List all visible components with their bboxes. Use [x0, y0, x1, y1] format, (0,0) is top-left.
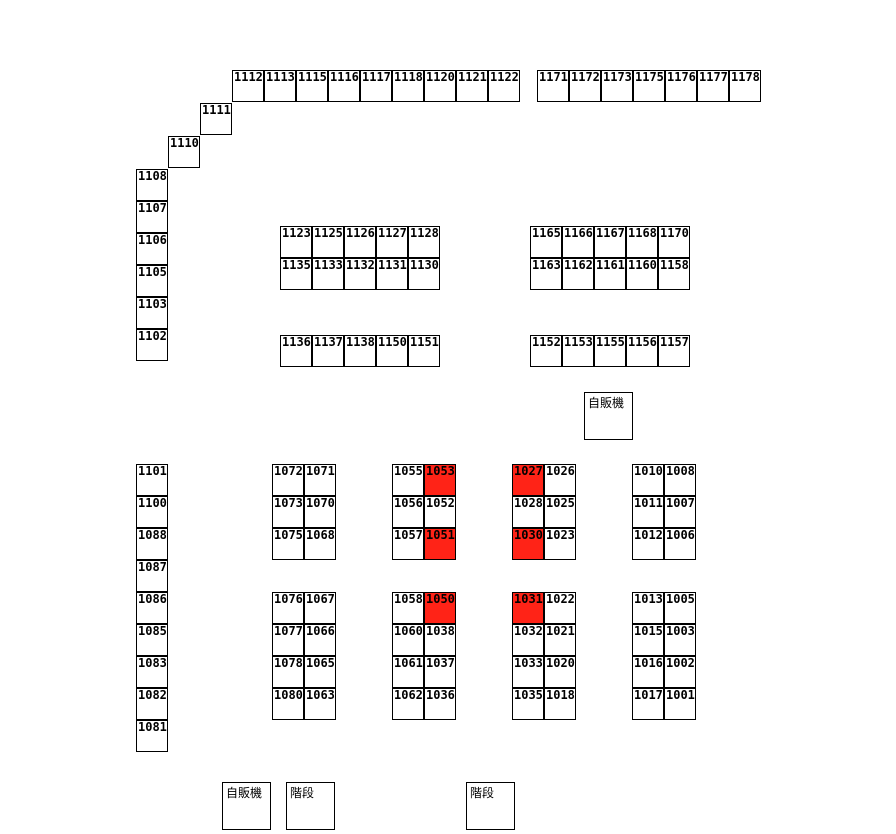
cell-1130: 1130 [408, 258, 440, 290]
cell-1102: 1102 [136, 329, 168, 361]
cell-1063: 1063 [304, 688, 336, 720]
cell-1083: 1083 [136, 656, 168, 688]
cell-1165: 1165 [530, 226, 562, 258]
cell-1155: 1155 [594, 335, 626, 367]
cell-1163: 1163 [530, 258, 562, 290]
cell-1117: 1117 [360, 70, 392, 102]
cell-1010: 1010 [632, 464, 664, 496]
cell-1030: 1030 [512, 528, 544, 560]
cell-1018: 1018 [544, 688, 576, 720]
cell-1133: 1133 [312, 258, 344, 290]
stairs-box-right: 階段 [466, 782, 515, 830]
cell-1051: 1051 [424, 528, 456, 560]
cell-1011: 1011 [632, 496, 664, 528]
cell-1055: 1055 [392, 464, 424, 496]
cell-1073: 1073 [272, 496, 304, 528]
cell-1068: 1068 [304, 528, 336, 560]
cell-1071: 1071 [304, 464, 336, 496]
cell-1157: 1157 [658, 335, 690, 367]
cell-1060: 1060 [392, 624, 424, 656]
cell-1087: 1087 [136, 560, 168, 592]
cell-1170: 1170 [658, 226, 690, 258]
cell-1156: 1156 [626, 335, 658, 367]
cell-1025: 1025 [544, 496, 576, 528]
stairs-box-left: 階段 [286, 782, 335, 830]
cell-1007: 1007 [664, 496, 696, 528]
cell-1027: 1027 [512, 464, 544, 496]
cell-1056: 1056 [392, 496, 424, 528]
cell-1176: 1176 [665, 70, 697, 102]
cell-1016: 1016 [632, 656, 664, 688]
cell-1137: 1137 [312, 335, 344, 367]
cell-1058: 1058 [392, 592, 424, 624]
cell-1120: 1120 [424, 70, 456, 102]
cell-1101: 1101 [136, 464, 168, 496]
cell-1136: 1136 [280, 335, 312, 367]
cell-1082: 1082 [136, 688, 168, 720]
cell-1177: 1177 [697, 70, 729, 102]
cell-1067: 1067 [304, 592, 336, 624]
cell-1123: 1123 [280, 226, 312, 258]
cell-1113: 1113 [264, 70, 296, 102]
cell-1160: 1160 [626, 258, 658, 290]
cell-1152: 1152 [530, 335, 562, 367]
cell-1161: 1161 [594, 258, 626, 290]
cell-1001: 1001 [664, 688, 696, 720]
cell-1037: 1037 [424, 656, 456, 688]
cell-1118: 1118 [392, 70, 424, 102]
cell-1175: 1175 [633, 70, 665, 102]
cell-1111: 1111 [200, 103, 232, 135]
cell-1017: 1017 [632, 688, 664, 720]
cell-1158: 1158 [658, 258, 690, 290]
cell-1035: 1035 [512, 688, 544, 720]
cell-1150: 1150 [376, 335, 408, 367]
cell-1112: 1112 [232, 70, 264, 102]
floor-map: 自販機 自販機 階段 階段 11121113111511161117111811… [0, 0, 896, 834]
cell-1080: 1080 [272, 688, 304, 720]
cell-1033: 1033 [512, 656, 544, 688]
cell-1052: 1052 [424, 496, 456, 528]
cell-1121: 1121 [456, 70, 488, 102]
cell-1065: 1065 [304, 656, 336, 688]
cell-1105: 1105 [136, 265, 168, 297]
cell-1061: 1061 [392, 656, 424, 688]
cell-1002: 1002 [664, 656, 696, 688]
cell-1167: 1167 [594, 226, 626, 258]
cell-1015: 1015 [632, 624, 664, 656]
cell-1138: 1138 [344, 335, 376, 367]
cell-1126: 1126 [344, 226, 376, 258]
cell-1168: 1168 [626, 226, 658, 258]
cell-1116: 1116 [328, 70, 360, 102]
cell-1053: 1053 [424, 464, 456, 496]
cell-1013: 1013 [632, 592, 664, 624]
cell-1075: 1075 [272, 528, 304, 560]
cell-1050: 1050 [424, 592, 456, 624]
cell-1070: 1070 [304, 496, 336, 528]
vending-machine-box-top: 自販機 [584, 392, 633, 440]
cell-1066: 1066 [304, 624, 336, 656]
cell-1135: 1135 [280, 258, 312, 290]
cell-1057: 1057 [392, 528, 424, 560]
cell-1172: 1172 [569, 70, 601, 102]
cell-1103: 1103 [136, 297, 168, 329]
cell-1021: 1021 [544, 624, 576, 656]
cell-1088: 1088 [136, 528, 168, 560]
cell-1072: 1072 [272, 464, 304, 496]
cell-1107: 1107 [136, 201, 168, 233]
cell-1131: 1131 [376, 258, 408, 290]
cell-1106: 1106 [136, 233, 168, 265]
cell-1151: 1151 [408, 335, 440, 367]
cell-1031: 1031 [512, 592, 544, 624]
cell-1012: 1012 [632, 528, 664, 560]
cell-1006: 1006 [664, 528, 696, 560]
cell-1128: 1128 [408, 226, 440, 258]
cell-1022: 1022 [544, 592, 576, 624]
cell-1110: 1110 [168, 136, 200, 168]
cell-1100: 1100 [136, 496, 168, 528]
cell-1028: 1028 [512, 496, 544, 528]
cell-1081: 1081 [136, 720, 168, 752]
cell-1171: 1171 [537, 70, 569, 102]
cell-1125: 1125 [312, 226, 344, 258]
cell-1115: 1115 [296, 70, 328, 102]
cell-1162: 1162 [562, 258, 594, 290]
cell-1062: 1062 [392, 688, 424, 720]
cell-1023: 1023 [544, 528, 576, 560]
vending-machine-box-bottom: 自販機 [222, 782, 271, 830]
cell-1003: 1003 [664, 624, 696, 656]
cell-1132: 1132 [344, 258, 376, 290]
cell-1038: 1038 [424, 624, 456, 656]
cell-1008: 1008 [664, 464, 696, 496]
cell-1026: 1026 [544, 464, 576, 496]
cell-1032: 1032 [512, 624, 544, 656]
cell-1166: 1166 [562, 226, 594, 258]
cell-1127: 1127 [376, 226, 408, 258]
cell-1086: 1086 [136, 592, 168, 624]
cell-1020: 1020 [544, 656, 576, 688]
cell-1036: 1036 [424, 688, 456, 720]
cell-1122: 1122 [488, 70, 520, 102]
cell-1108: 1108 [136, 169, 168, 201]
cell-1173: 1173 [601, 70, 633, 102]
cell-1005: 1005 [664, 592, 696, 624]
cell-1076: 1076 [272, 592, 304, 624]
cell-1078: 1078 [272, 656, 304, 688]
cell-1178: 1178 [729, 70, 761, 102]
cell-1153: 1153 [562, 335, 594, 367]
cell-1077: 1077 [272, 624, 304, 656]
cell-1085: 1085 [136, 624, 168, 656]
